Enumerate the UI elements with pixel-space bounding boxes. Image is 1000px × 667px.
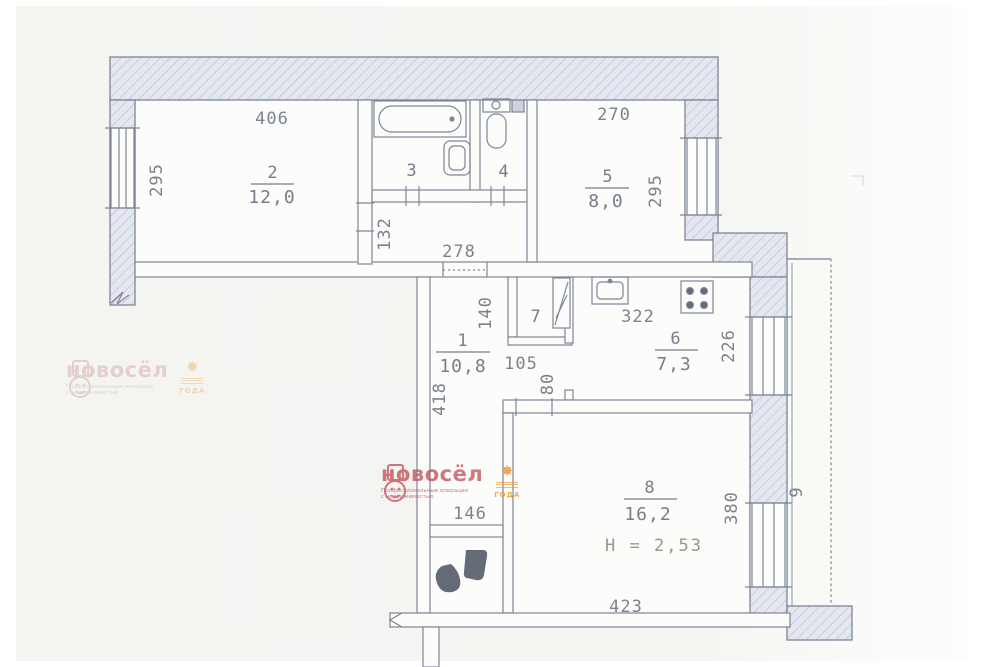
room5-number: 5: [602, 167, 613, 187]
wall-wc2-top: [430, 525, 503, 537]
room2-number: 2: [267, 163, 278, 183]
wall-bath-wc: [470, 100, 480, 202]
wall-room2-bath: [358, 100, 372, 264]
label-balcony-number: 9: [787, 486, 807, 497]
dim-closet-width: 105: [504, 354, 538, 374]
scanned-floor-plan: 406 295 270 295 132 278 140 105 322 226 …: [0, 0, 1000, 667]
door-wc-gap: [491, 191, 504, 201]
room8-number: 8: [644, 478, 655, 498]
room6-area: 7,3: [656, 354, 692, 375]
window-room2: [105, 128, 140, 208]
badge-text: ГОДА: [494, 491, 520, 499]
dim-kitchen-depth: 226: [719, 329, 739, 363]
dim-wc2-width: 146: [453, 504, 487, 524]
award-badge: ✸ ГОДА: [177, 360, 207, 395]
room1-number: 1: [457, 331, 468, 351]
room3-number: 3: [406, 161, 417, 181]
novosel-logo-icon: [381, 464, 411, 506]
badge-decor-lines: [181, 376, 203, 385]
vent-shaft-icon: [512, 100, 524, 112]
room4-number: 4: [498, 162, 509, 182]
room7-number: 7: [530, 307, 541, 327]
window-room8: [745, 503, 792, 587]
wall-closet-bottom: [508, 337, 572, 345]
dim-room5-depth: 295: [646, 174, 666, 208]
window-kitchen: [745, 317, 792, 395]
award-badge: ✸ ГОДА: [492, 464, 522, 499]
watermark-novosel-center: новосёл Профессиональные операции с недв…: [381, 464, 522, 500]
wall-closet-left: [508, 277, 517, 337]
dim-corridor-width: 278: [442, 242, 476, 262]
wall-hall-left: [417, 277, 430, 613]
badge-decor-lines: [496, 480, 518, 489]
outer-wall-top: [110, 57, 718, 100]
dim-room5-width: 270: [597, 105, 631, 125]
wall-wc-room5: [527, 100, 537, 262]
dim-closet-depth: 140: [476, 296, 496, 330]
room6-number: 6: [670, 329, 681, 349]
dim-door-width: 80: [538, 373, 558, 395]
room2-area: 12,0: [248, 187, 295, 208]
dim-hall-depth: 418: [430, 382, 450, 416]
room1-area: 10,8: [439, 356, 486, 377]
dim-room2-depth: 295: [147, 163, 167, 197]
door-room8-gap: [516, 401, 552, 412]
novosel-logo-icon: [66, 360, 96, 402]
award-star-icon: ✸: [501, 464, 514, 478]
room8-area: 16,2: [624, 504, 671, 525]
room8-ceiling-height: H = 2,53: [605, 536, 703, 556]
wall-bath-bottom: [372, 190, 530, 202]
outer-wall-stub-bottom-right: [787, 606, 852, 640]
dim-room8-depth: 380: [722, 491, 742, 525]
wall-room8-left: [503, 413, 513, 613]
dim-room2-width: 406: [255, 109, 289, 129]
dim-kitchen-width: 322: [621, 307, 655, 327]
door-room2-gap: [359, 203, 371, 231]
room5-area: 8,0: [588, 191, 624, 212]
wall-bottom-left-stub: [423, 627, 439, 667]
watermark-novosel-left: новосёл Профессиональные операции с недв…: [66, 360, 207, 396]
door-bath-gap: [406, 191, 419, 201]
dim-corridor-depth: 132: [375, 217, 395, 251]
floor-plan-drawing: 406 295 270 295 132 278 140 105 322 226 …: [0, 0, 1000, 667]
award-star-icon: ✸: [186, 360, 199, 374]
dim-room8-width: 423: [609, 597, 643, 617]
wall-bottom: [390, 613, 790, 627]
window-room5: [680, 138, 722, 215]
wall-kitchen-left-stub: [565, 390, 573, 400]
badge-text: ГОДА: [179, 387, 205, 395]
